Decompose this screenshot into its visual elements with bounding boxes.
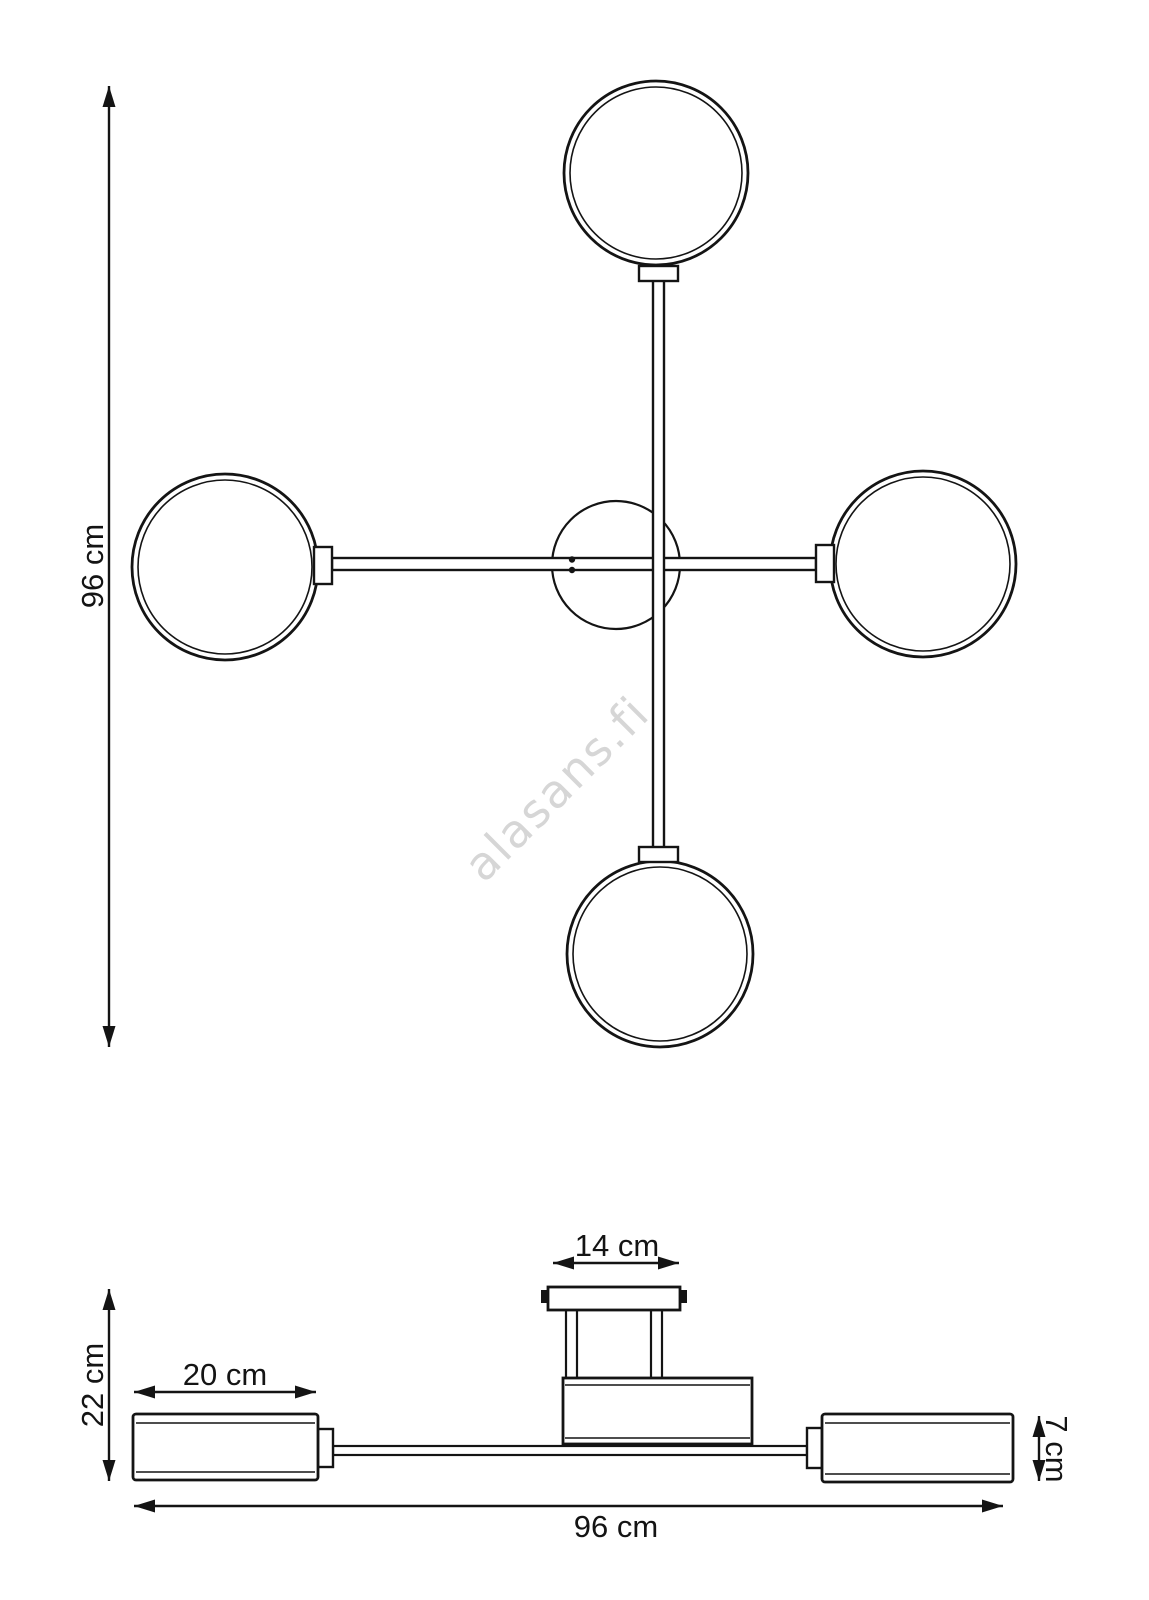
stem-vertical — [653, 280, 664, 849]
mounting-post-left — [566, 1309, 577, 1379]
shade-connector-left — [318, 1429, 333, 1467]
side-view: 14 cm 22 cm 20 cm 7 cm 96 cm — [75, 1228, 1074, 1544]
dim-shade-height-label: 7 cm — [1039, 1415, 1074, 1482]
socket-left — [314, 547, 332, 584]
watermark-text: alasans.fi — [453, 685, 659, 891]
shade-left — [133, 1414, 318, 1480]
screw-dot-bottom — [569, 567, 575, 573]
mounting-post-right — [651, 1309, 662, 1379]
dim-canopy-width-label: 14 cm — [575, 1228, 659, 1263]
center-body — [563, 1378, 752, 1444]
socket-top — [639, 266, 678, 281]
globe-right — [830, 471, 1016, 657]
globe-top — [564, 81, 748, 265]
dim-shade-length-label: 20 cm — [183, 1357, 267, 1392]
technical-drawing-svg: alasans.fi 96 cm — [0, 0, 1149, 1600]
globe-left — [132, 474, 318, 660]
dim-total-width-label: 96 cm — [574, 1509, 658, 1544]
socket-right — [816, 545, 834, 582]
ceiling-plate — [548, 1287, 680, 1310]
arm-rod — [333, 1446, 807, 1455]
socket-bottom — [639, 847, 678, 862]
dim-drop-height-label: 22 cm — [75, 1343, 110, 1427]
screw-dot-top — [569, 556, 575, 562]
shade-right — [822, 1414, 1013, 1482]
lamp-dimension-drawing: alasans.fi 96 cm — [0, 0, 1149, 1600]
globe-bottom — [567, 861, 753, 1047]
shade-connector-right — [807, 1428, 822, 1468]
dim-height-label: 96 cm — [75, 524, 110, 608]
plan-view: 96 cm — [75, 81, 1016, 1047]
